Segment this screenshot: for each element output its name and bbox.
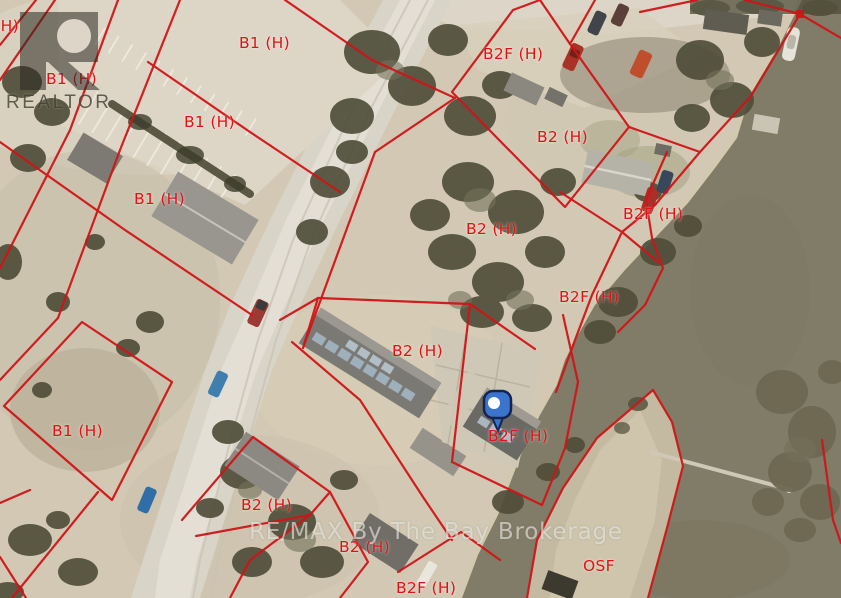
aerial-map-canvas [0, 0, 841, 598]
aerial-map-viewport[interactable]: B1 (H)B1 (H)B1 (H)B1 (H)B1 (H)B1 (H)B2F … [0, 0, 841, 598]
brokerage-watermark: RE/MAX By The Bay Brokerage [249, 519, 623, 545]
realtor-logo: REALTOR [6, 6, 116, 118]
realtor-wordmark: REALTOR [6, 92, 112, 114]
